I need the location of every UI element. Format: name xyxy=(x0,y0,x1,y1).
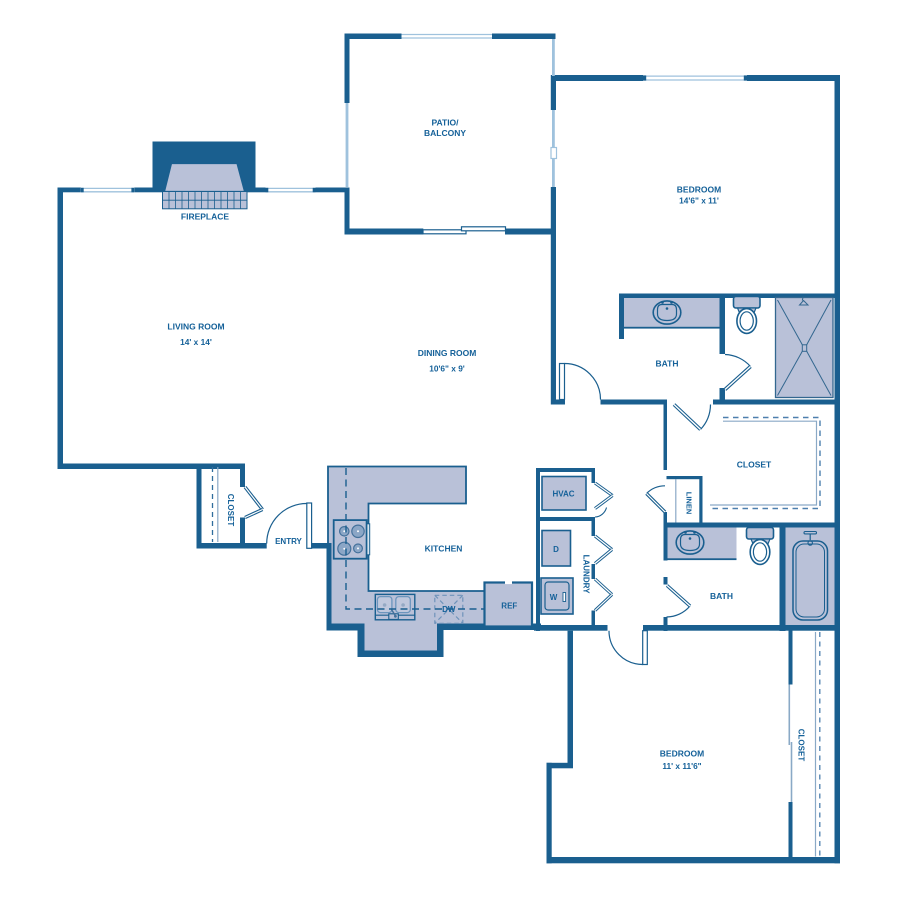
svg-text:CLOSET: CLOSET xyxy=(226,494,235,527)
svg-text:BALCONY: BALCONY xyxy=(424,128,466,138)
svg-text:14'6" x 11': 14'6" x 11' xyxy=(679,196,719,206)
svg-text:BEDROOM: BEDROOM xyxy=(677,184,721,194)
svg-text:D: D xyxy=(553,545,559,554)
svg-text:HVAC: HVAC xyxy=(552,489,574,498)
svg-text:REF: REF xyxy=(501,601,517,610)
svg-text:ENTRY: ENTRY xyxy=(275,537,302,546)
svg-text:BATH: BATH xyxy=(710,591,733,601)
svg-text:DINING ROOM: DINING ROOM xyxy=(418,348,477,358)
svg-text:DW: DW xyxy=(442,605,456,614)
svg-text:14' x 14': 14' x 14' xyxy=(180,337,212,347)
svg-text:LINEN: LINEN xyxy=(685,492,694,515)
svg-text:CLOSET: CLOSET xyxy=(797,729,806,762)
svg-text:LAUNDRY: LAUNDRY xyxy=(582,555,591,594)
svg-text:FIREPLACE: FIREPLACE xyxy=(181,212,230,222)
svg-text:LIVING ROOM: LIVING ROOM xyxy=(167,321,224,331)
svg-text:10'6" x 9': 10'6" x 9' xyxy=(429,364,465,374)
svg-text:W: W xyxy=(550,593,558,602)
svg-text:PATIO/: PATIO/ xyxy=(431,117,459,127)
svg-text:BATH: BATH xyxy=(656,358,679,368)
svg-text:BEDROOM: BEDROOM xyxy=(660,748,704,758)
svg-text:11' x 11'6": 11' x 11'6" xyxy=(662,761,701,771)
svg-text:CLOSET: CLOSET xyxy=(737,459,772,469)
svg-text:KITCHEN: KITCHEN xyxy=(425,543,463,553)
